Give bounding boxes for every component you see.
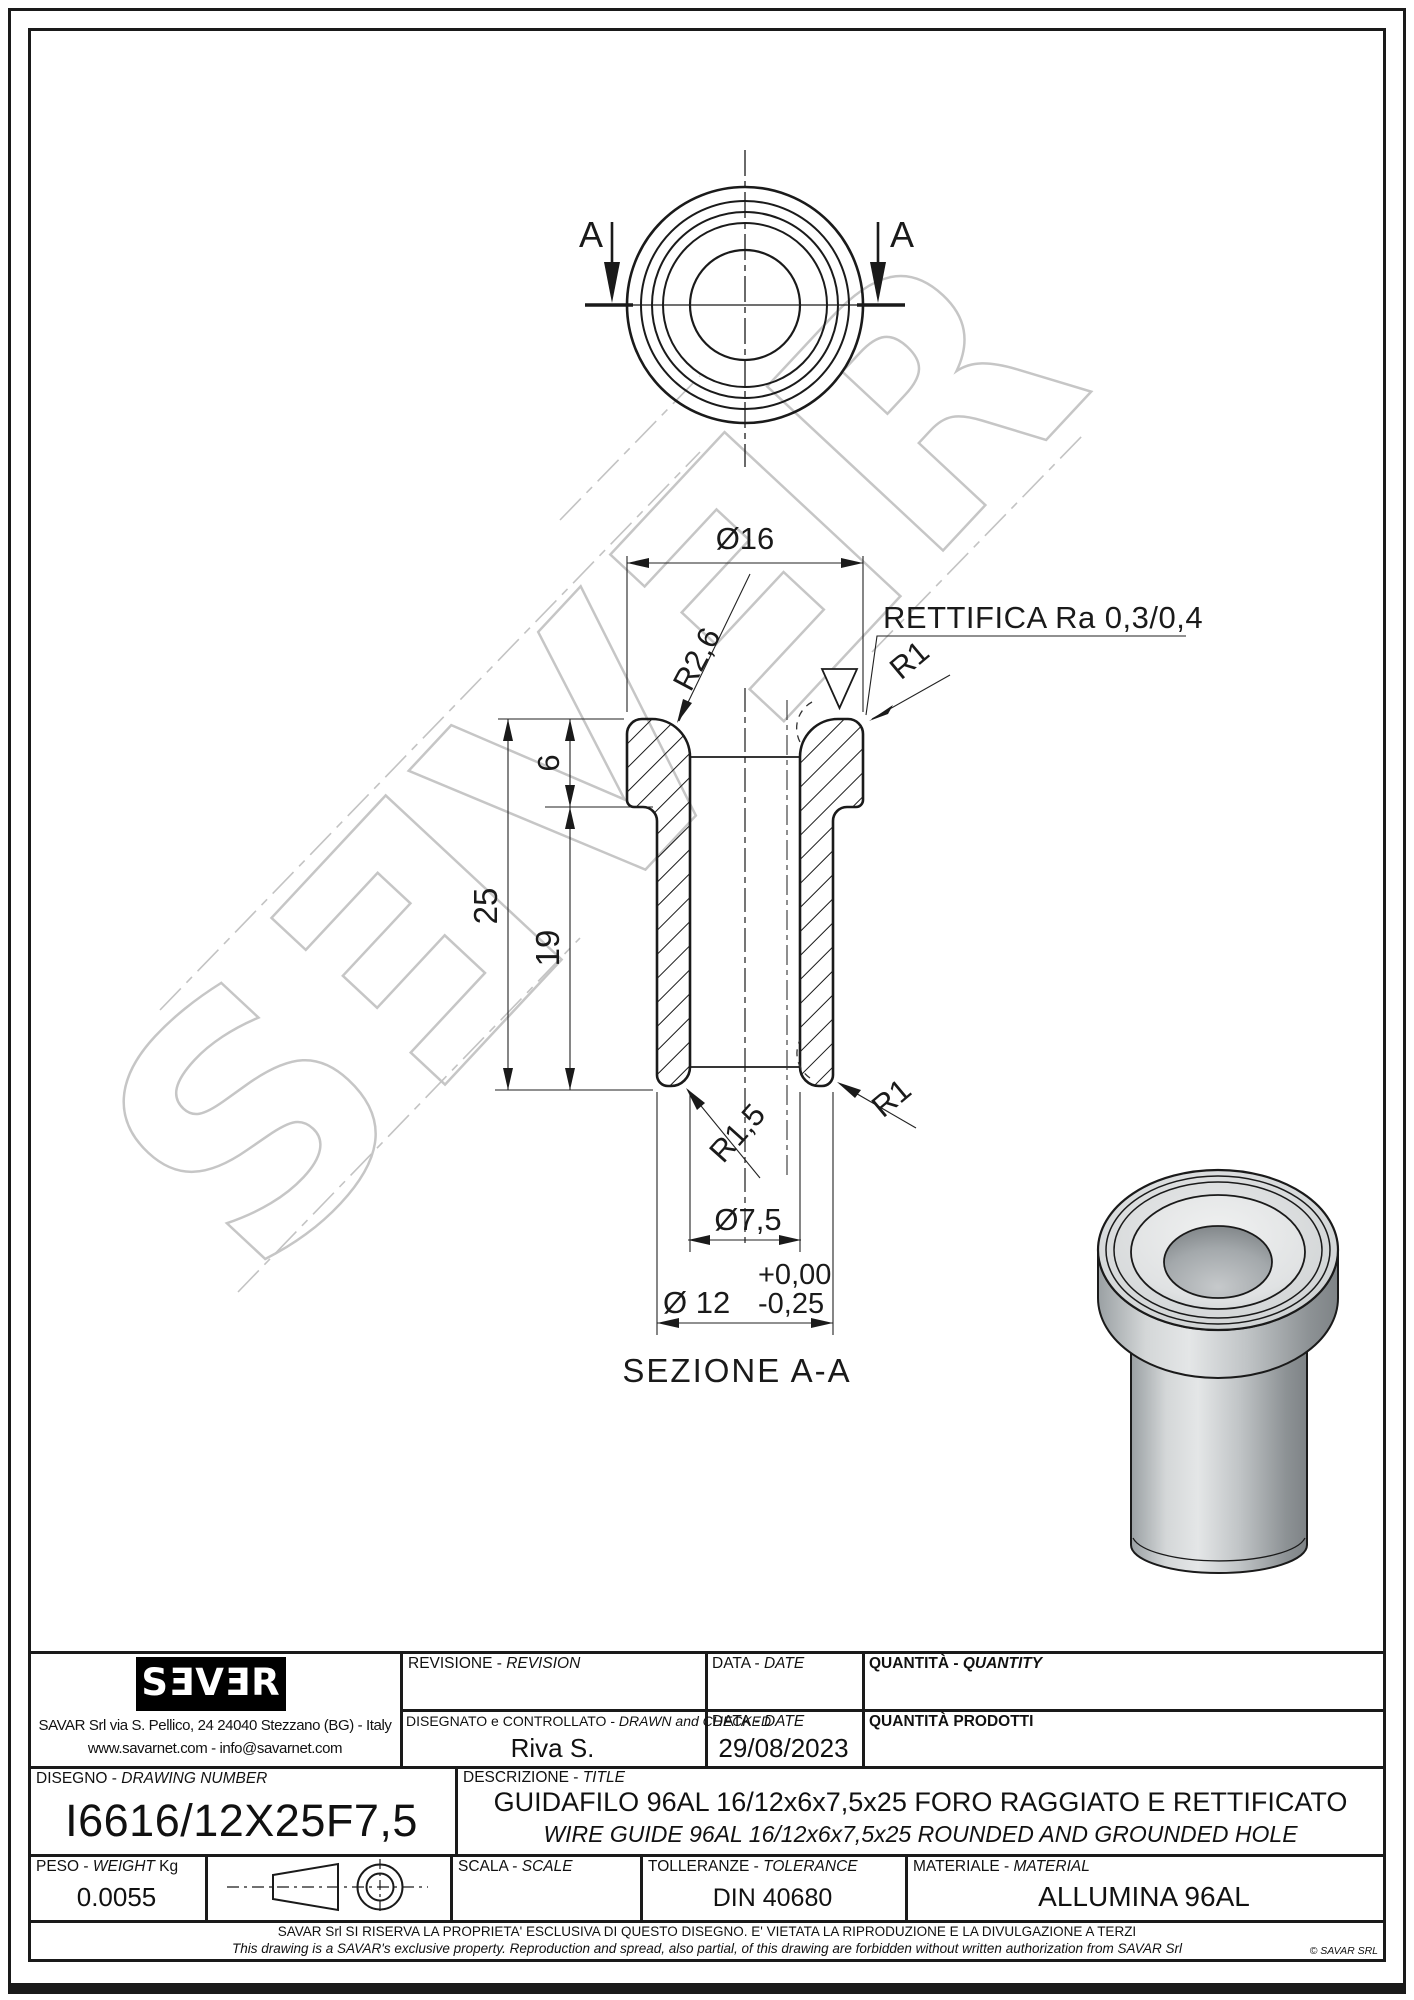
section-label-right: A — [890, 214, 914, 255]
description-line2: WIRE GUIDE 96AL 16/12x6x7,5x25 ROUNDED A… — [455, 1821, 1386, 1848]
section-arrow-left — [604, 262, 620, 303]
tolerance-value: DIN 40680 — [640, 1884, 905, 1913]
quantity-header: QUANTITÀ - QUANTITY — [869, 1655, 1042, 1673]
grind-note: RETTIFICA Ra 0,3/0,4 — [883, 600, 1203, 635]
drawing-sheet: SƎVƎR A A — [0, 0, 1414, 2000]
dim-25: 25 — [467, 888, 504, 925]
bore-opening — [1164, 1226, 1272, 1298]
section-view — [627, 688, 863, 1248]
dim-19: 19 — [529, 930, 566, 967]
section-label-left: A — [579, 214, 603, 255]
copyright-note: © SAVAR SRL — [1266, 1945, 1378, 1957]
dim-r1-bottom: R1 — [865, 1072, 918, 1124]
dim-r15: R1,5 — [702, 1097, 772, 1169]
company-address: SAVAR Srl via S. Pellico, 24 24040 Stezz… — [28, 1717, 402, 1734]
quantity-produced-header: QUANTITÀ PRODOTTI — [869, 1713, 1033, 1731]
dim-d12: Ø 12 — [663, 1285, 730, 1320]
description-header: DESCRIZIONE - TITLE — [463, 1769, 625, 1787]
tol-minus: -0,25 — [758, 1288, 824, 1320]
drawn-value: Riva S. — [400, 1733, 705, 1764]
drawing-number-header: DISEGNO - DRAWING NUMBER — [36, 1770, 267, 1788]
material-header: MATERIALE - MATERIAL — [913, 1858, 1090, 1876]
disclaimer-it: SAVAR Srl SI RISERVA LA PROPRIETA' ESCLU… — [28, 1924, 1386, 1939]
drawing-number: I6616/12X25F7,5 — [28, 1795, 455, 1847]
tol-plus: +0,00 — [758, 1259, 831, 1291]
tolerance-header: TOLLERANZE - TOLERANCE — [648, 1858, 858, 1876]
scale-header: SCALA - SCALE — [458, 1858, 573, 1876]
description-line1: GUIDAFILO 96AL 16/12x6x7,5x25 FORO RAGGI… — [455, 1787, 1386, 1818]
watermark-text: SƎVƎR — [33, 172, 1158, 1339]
part-3d-render — [1098, 1170, 1338, 1573]
company-web-email: www.savarnet.com - info@savarnet.com — [28, 1740, 402, 1757]
dim-d16: Ø16 — [716, 521, 775, 556]
savar-logo: SƎVƎR — [136, 1657, 286, 1711]
date-header-1: DATA - DATE — [712, 1655, 804, 1673]
savar-watermark: SƎVƎR — [33, 172, 1158, 1339]
weight-header: PESO - WEIGHT Kg — [36, 1858, 178, 1876]
date-value: 29/08/2023 — [705, 1733, 862, 1764]
weight-value: 0.0055 — [28, 1882, 205, 1913]
section-caption: SEZIONE A-A — [622, 1352, 851, 1389]
disclaimer-en: This drawing is a SAVAR's exclusive prop… — [28, 1941, 1386, 1956]
date-header-2: DATA - DATE — [712, 1713, 804, 1731]
material-value: ALLUMINA 96AL — [905, 1881, 1383, 1913]
revision-header: REVISIONE - REVISION — [408, 1655, 580, 1673]
section-wall-right — [800, 719, 863, 1086]
projection-symbol — [205, 1854, 450, 1920]
dim-6: 6 — [531, 754, 566, 771]
dim-d75: Ø7,5 — [714, 1202, 781, 1237]
